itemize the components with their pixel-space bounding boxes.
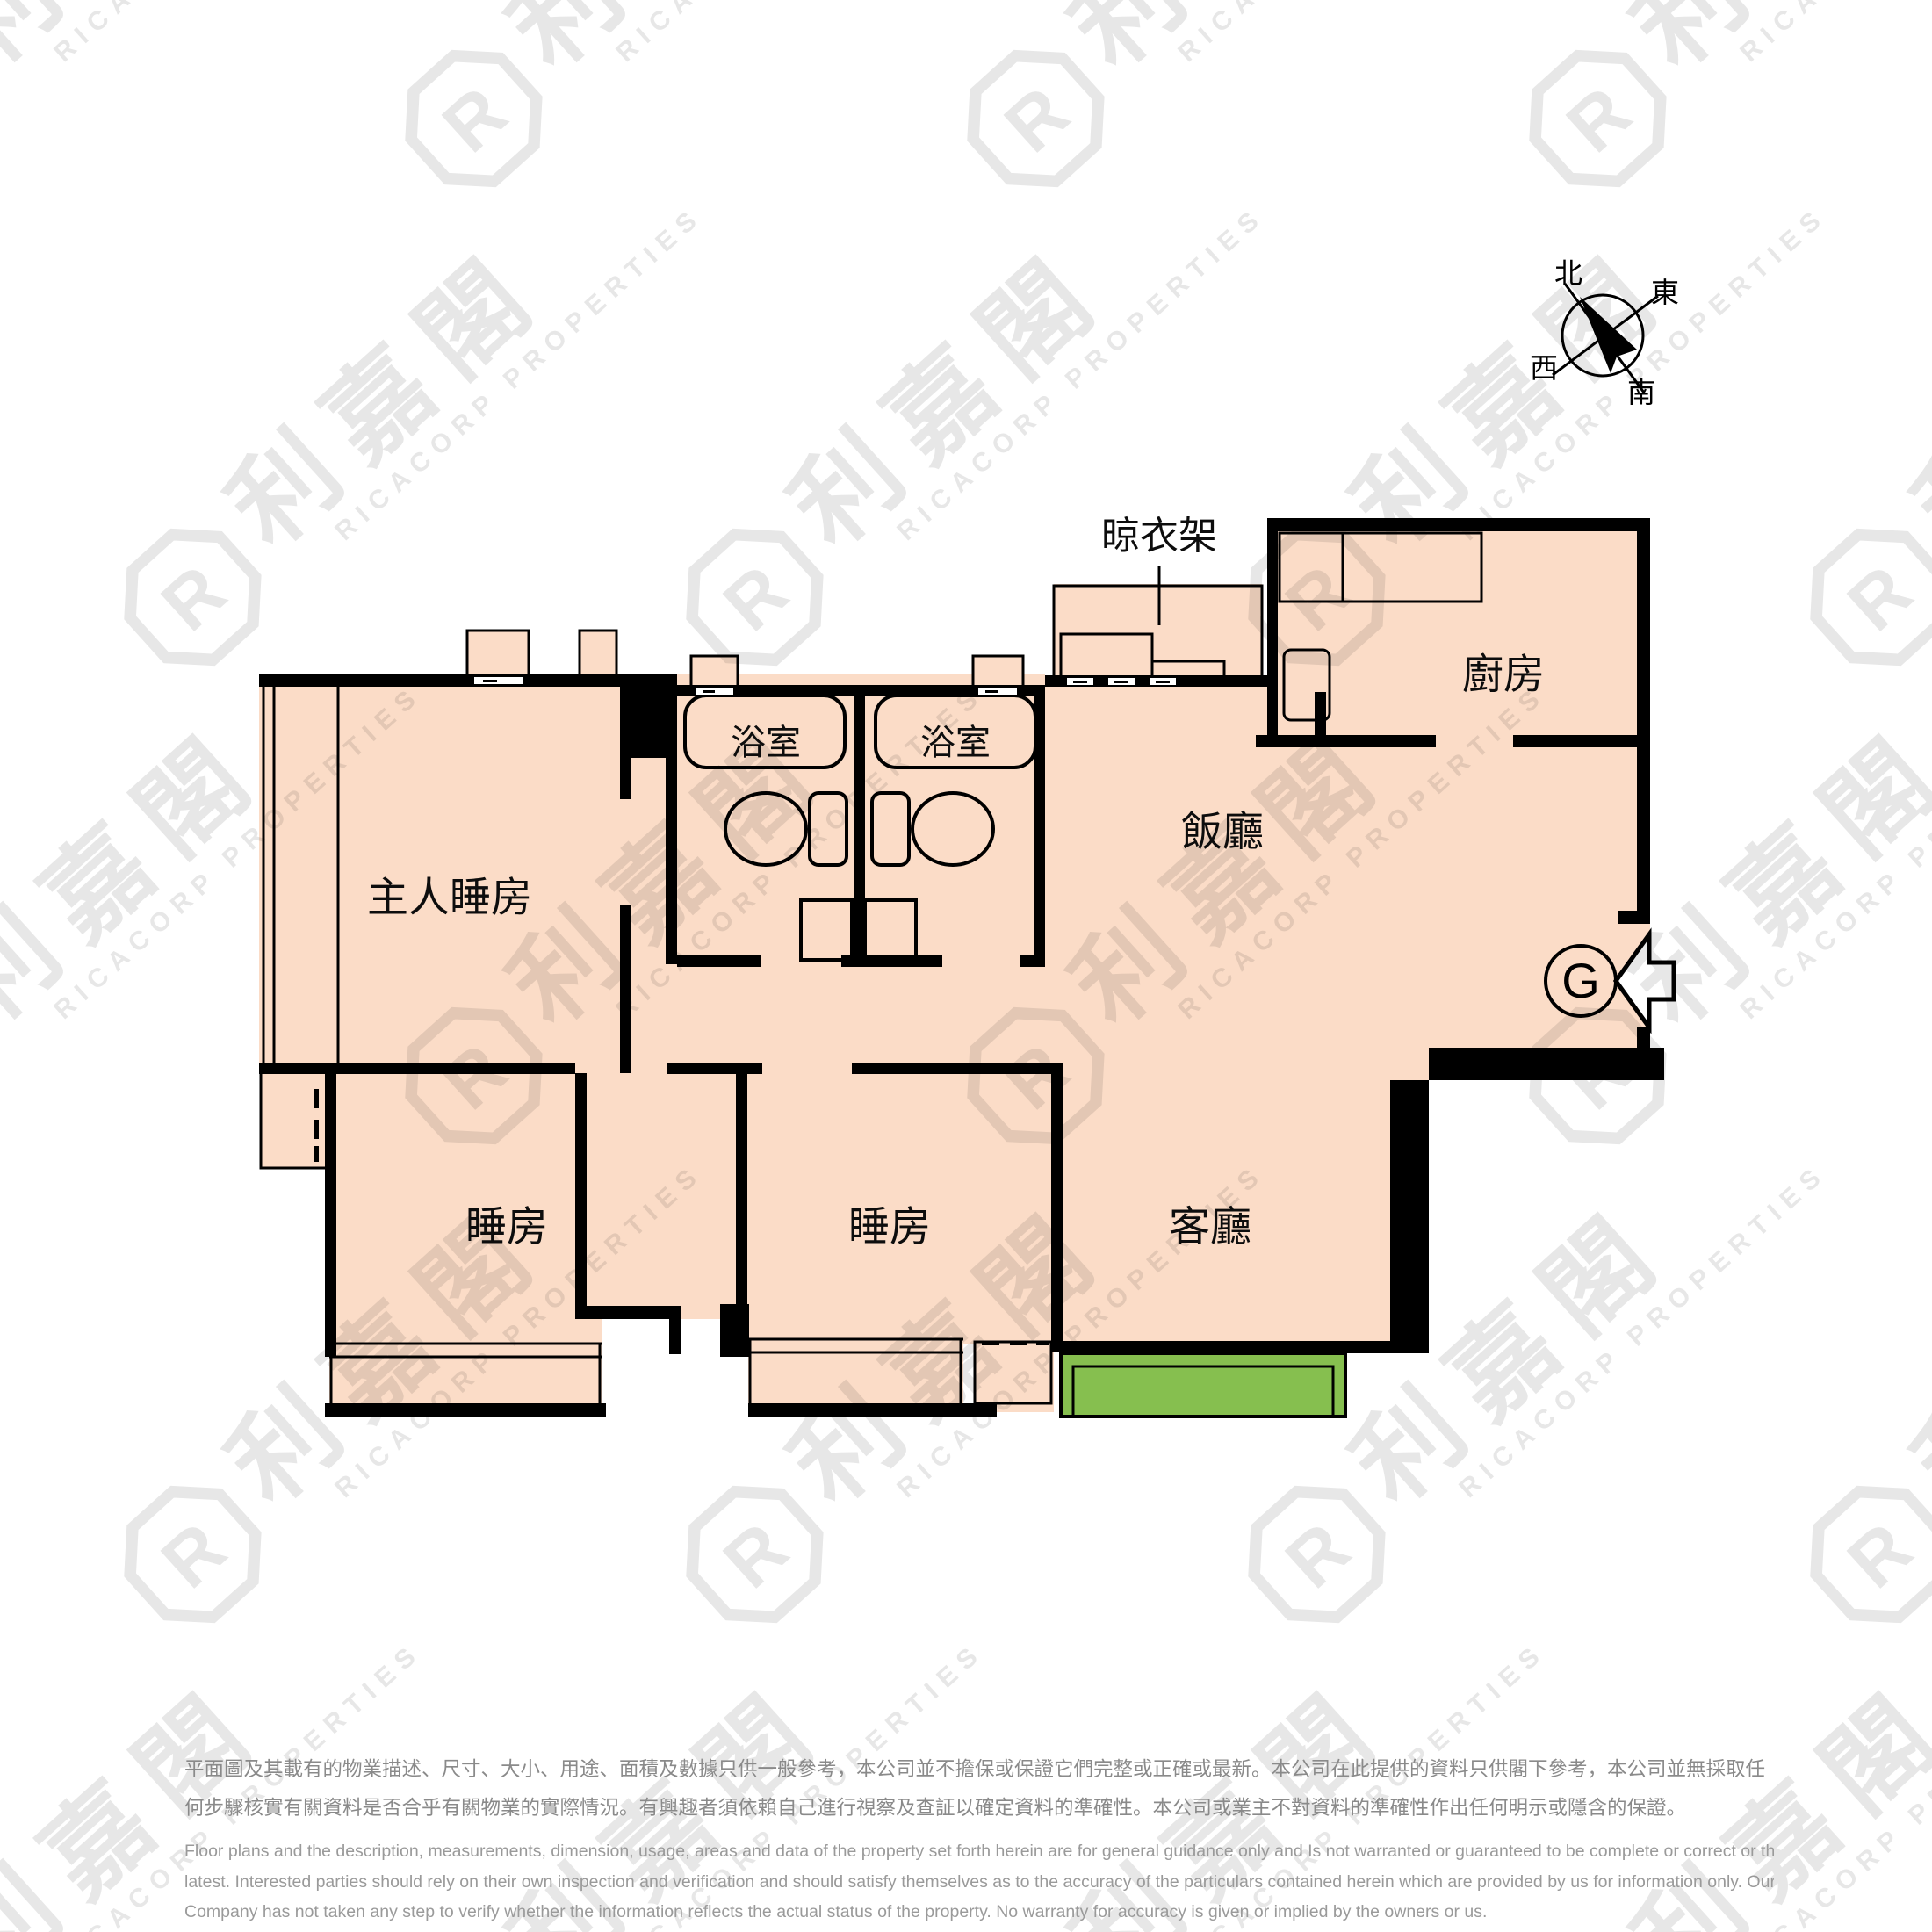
window-bump-3: [691, 656, 738, 688]
sink-2: [865, 900, 916, 960]
toilet-1-tank: [810, 793, 847, 865]
label-kitchen: 廚房: [1462, 651, 1545, 697]
floorplan-drawing: G 北 東 西 南 主人睡房 浴室 浴室 廚房 飯廳 睡房 睡房 客廳 晾衣架: [0, 0, 1932, 1932]
label-drying-rack: 晾衣架: [1101, 515, 1217, 558]
disclaimer-block: 平面圖及其載有的物業描述、尺寸、大小、用途、面積及數據只供一般參考，本公司並不擔…: [184, 1750, 1774, 1928]
label-master-bedroom: 主人睡房: [367, 874, 532, 920]
label-living: 客廳: [1169, 1203, 1251, 1250]
compass-north-label: 北: [1554, 257, 1582, 289]
window-bump-4: [973, 656, 1023, 688]
label-bedroom-1: 睡房: [465, 1203, 548, 1250]
balcony-green-area: [1061, 1353, 1345, 1417]
compass-needle-icon: [1580, 297, 1637, 373]
disclaimer-cn-line1: 平面圖及其載有的物業描述、尺寸、大小、用途、面積及數據只供一般參考，本公司並不擔…: [184, 1750, 1774, 1789]
toilet-2-tank: [872, 793, 909, 865]
dining-living-area: [1045, 687, 1650, 1353]
sink-1: [801, 900, 852, 960]
label-bathroom-1: 浴室: [731, 724, 801, 762]
window-bump-2: [580, 631, 616, 676]
disclaimer-en-line2: latest. Interested parties should rely o…: [184, 1867, 1774, 1898]
compass-east-label: 東: [1651, 277, 1679, 308]
bedroom2-bay-window: [748, 1339, 963, 1414]
disclaimer-en-line1: Floor plans and the description, measure…: [184, 1836, 1774, 1867]
utility-box: [975, 1342, 1054, 1412]
label-bedroom-2: 睡房: [848, 1203, 931, 1250]
bedroom1-area: [325, 1073, 602, 1357]
inner-corridor-area: [571, 1073, 751, 1319]
window-bump-1: [467, 631, 529, 678]
toilet-1-bowl: [725, 793, 806, 865]
balcony: [1061, 1353, 1345, 1417]
compass-south-label: 南: [1627, 377, 1655, 408]
toilet-2-bowl: [912, 793, 993, 865]
disclaimer-en-line3: Company has not taken any step to verify…: [184, 1897, 1774, 1928]
label-bathroom-2: 浴室: [920, 724, 991, 762]
floorplan-page: G 北 東 西 南 主人睡房 浴室 浴室 廚房 飯廳 睡房 睡房 客廳 晾衣架 …: [0, 0, 1932, 1932]
compass-west-label: 西: [1530, 352, 1558, 384]
compass: 北 東 西 南: [1530, 257, 1679, 408]
entrance-label: G: [1561, 953, 1600, 1008]
disclaimer-cn-line2: 何步驟核實有關資料是否合乎有關物業的實際情況。有興趣者須依賴自己進行視察及查証以…: [184, 1789, 1774, 1827]
label-dining: 飯廳: [1181, 808, 1264, 854]
